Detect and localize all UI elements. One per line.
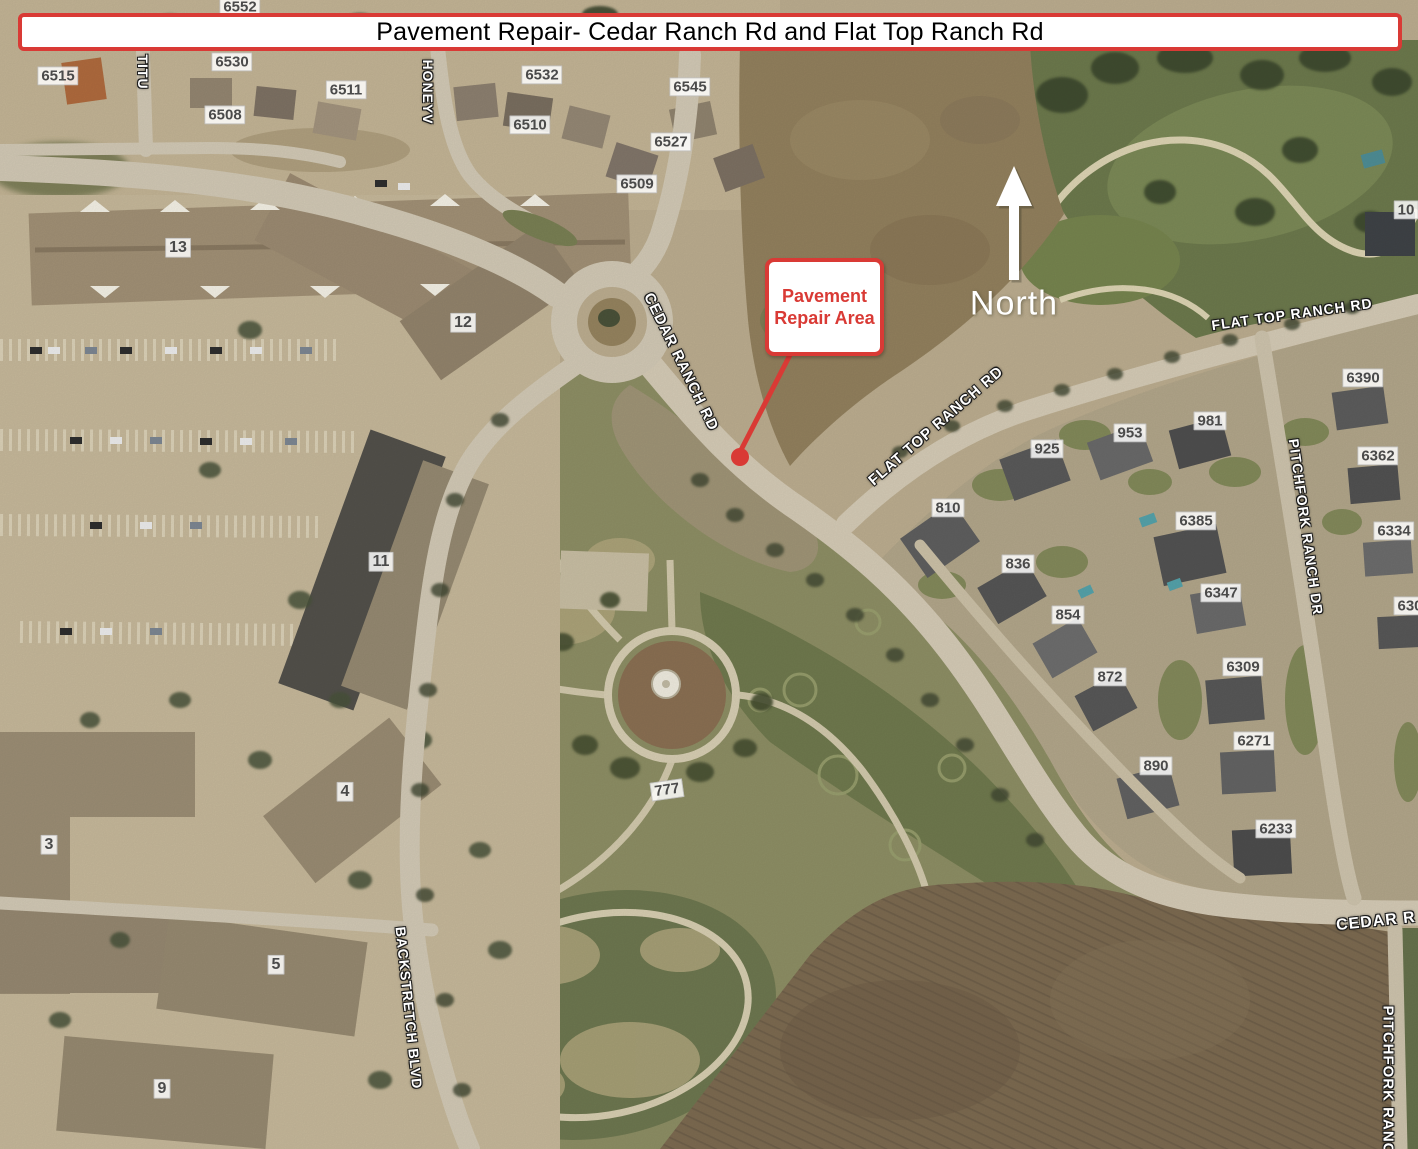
map-stage: 6552651565306511650865326510654565276509… (0, 0, 1418, 1149)
pavement-repair-callout: Pavement Repair Area (765, 258, 884, 356)
street-label-titu: TITU (135, 54, 151, 89)
street-label-honeyv: HONEYV (420, 59, 436, 124)
banner-title: Pavement Repair- Cedar Ranch Rd and Flat… (376, 18, 1043, 47)
street-label-flat-top-ranch-rd: FLAT TOP RANCH RD (865, 363, 1007, 489)
north-label: North (970, 285, 1058, 324)
street-label-pitchfork-ranc: PITCHFORK RANC (1380, 1006, 1397, 1149)
title-banner: Pavement Repair- Cedar Ranch Rd and Flat… (18, 13, 1402, 51)
callout-line-1: Pavement (782, 285, 867, 308)
street-label-flat-top-ranch-rd: FLAT TOP RANCH RD (1210, 295, 1373, 333)
street-label-cedar-ranch-rd: CEDAR RANCH RD (640, 290, 722, 434)
street-label-backstretch-blvd: BACKSTRETCH BLVD (392, 926, 425, 1090)
callout-line-2: Repair Area (774, 307, 874, 330)
street-labels-layer: TITUHONEYVCEDAR RANCH RDFLAT TOP RANCH R… (0, 0, 1418, 1149)
street-label-pitchfork-ranch-dr: PITCHFORK RANCH DR (1286, 438, 1327, 617)
street-label-cedar-r: CEDAR R (1335, 909, 1416, 935)
